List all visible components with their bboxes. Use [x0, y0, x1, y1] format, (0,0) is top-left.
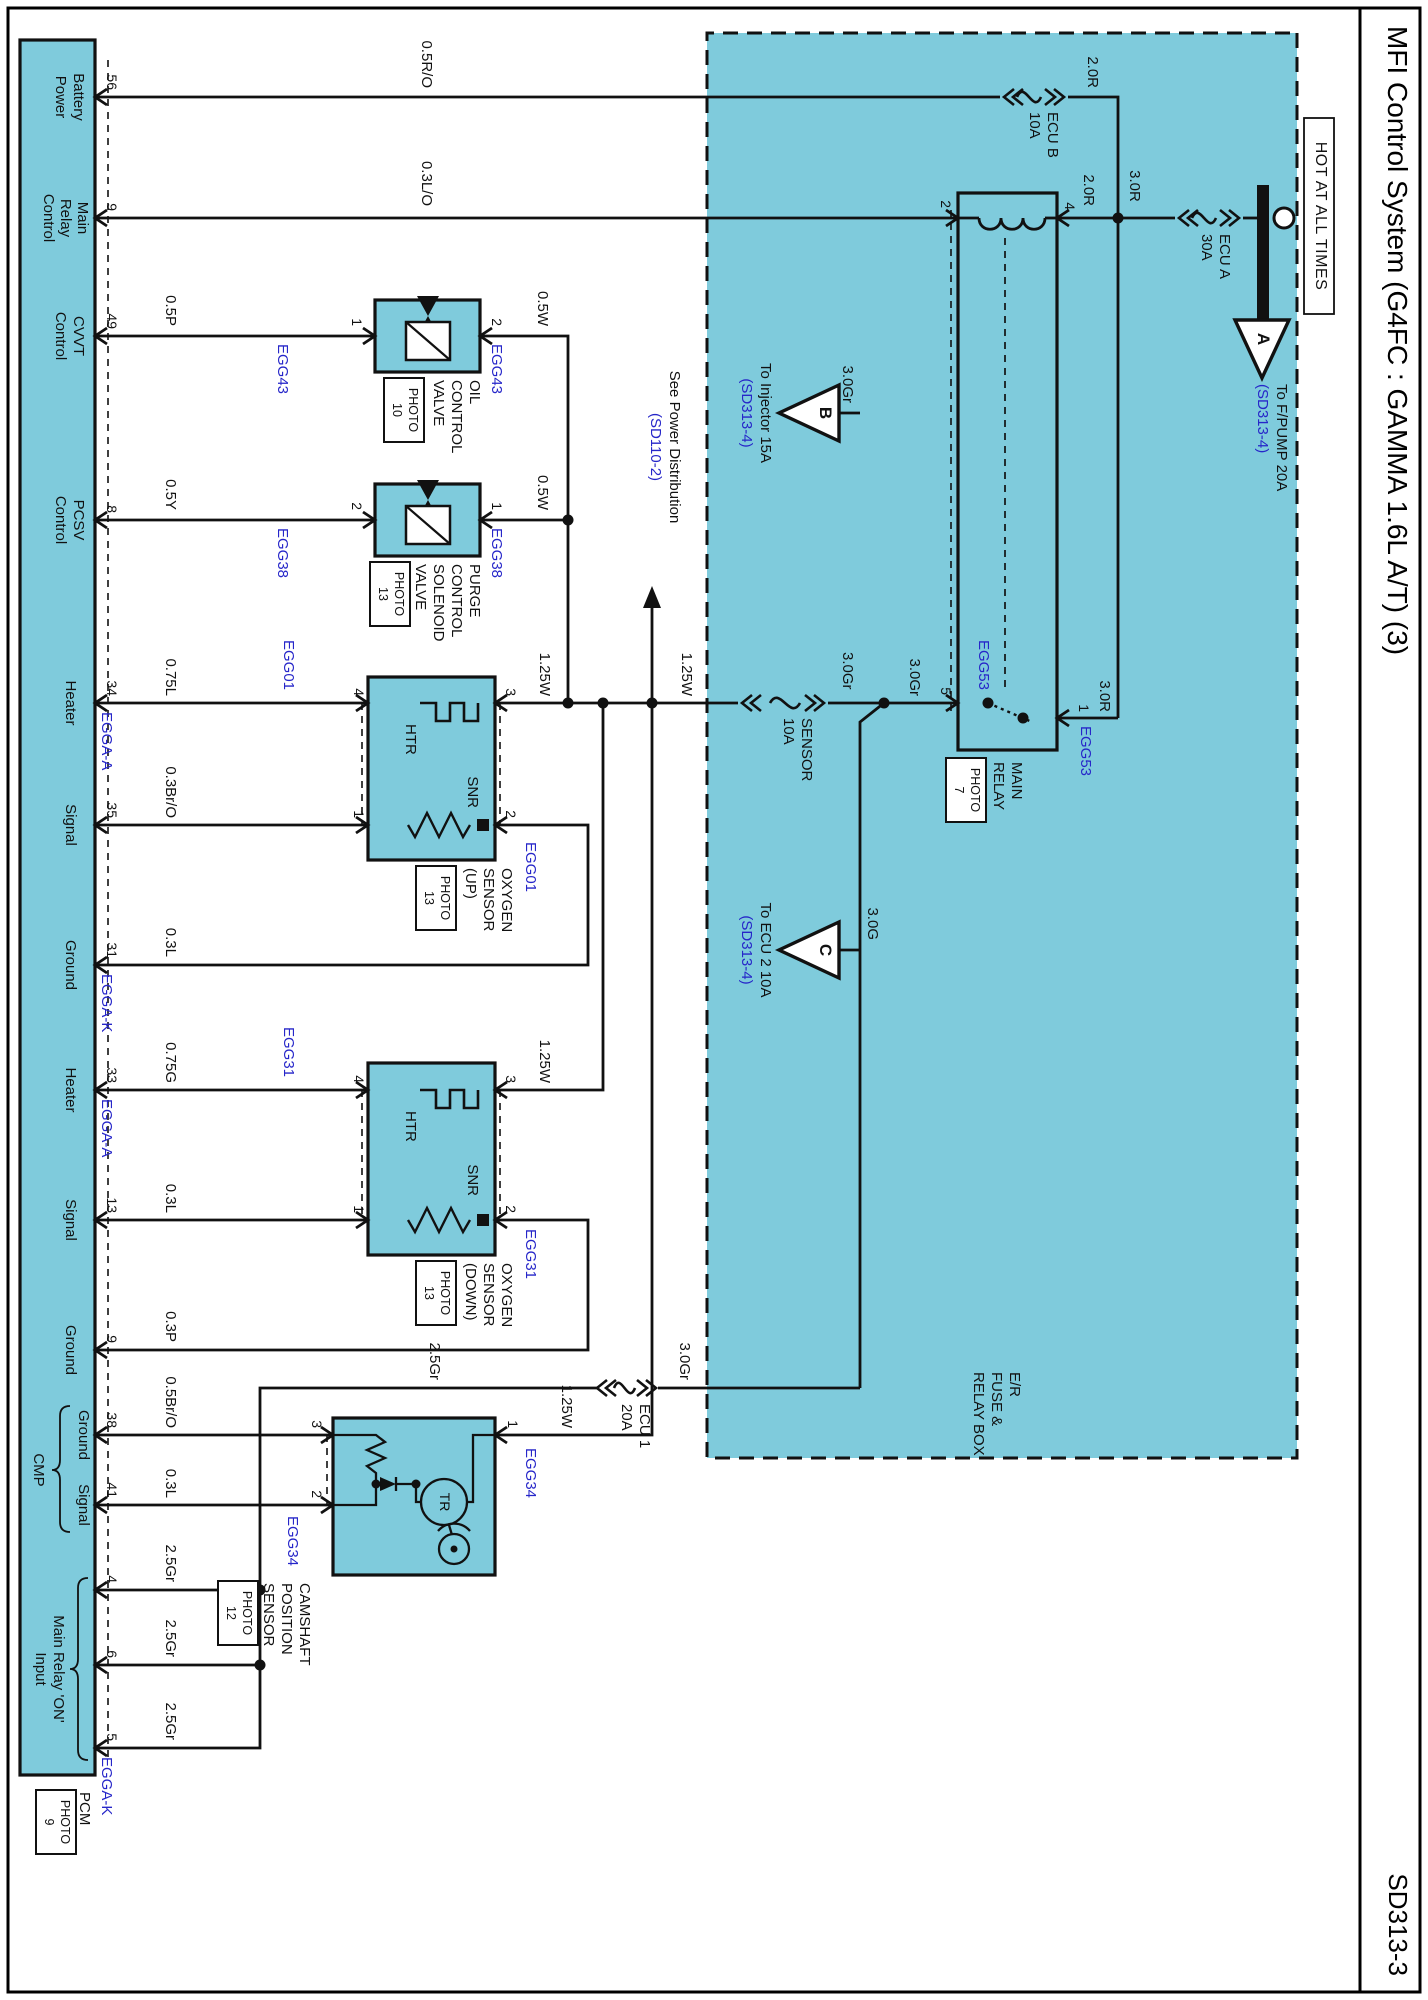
cmp-junction-dot	[412, 1480, 421, 1489]
schematic-canvas	[0, 0, 1428, 2000]
snr-terminal-icon	[477, 1214, 489, 1226]
cmp-junction-dot	[372, 1480, 381, 1489]
diagram-stage: MFI Control System (G4FC : GAMMA 1.6L A/…	[0, 0, 1428, 2000]
camshaft-position-sensor-box	[333, 1418, 495, 1575]
oxygen-sensor-down-box	[368, 1063, 495, 1255]
fuse-ecu-1-20a	[597, 1380, 656, 1396]
rotated-wiring-diagram-page: MFI Control System (G4FC : GAMMA 1.6L A/…	[0, 0, 1428, 2000]
hot-at-all-times-box	[1304, 118, 1334, 314]
oxygen-sensor-up-box	[368, 677, 495, 860]
power-distribution-arrow-icon	[643, 586, 661, 608]
snr-terminal-icon	[477, 819, 489, 831]
main-relay-box	[958, 193, 1057, 750]
cmp-pickup-dot	[451, 1546, 458, 1553]
pcm-box	[20, 40, 95, 1775]
